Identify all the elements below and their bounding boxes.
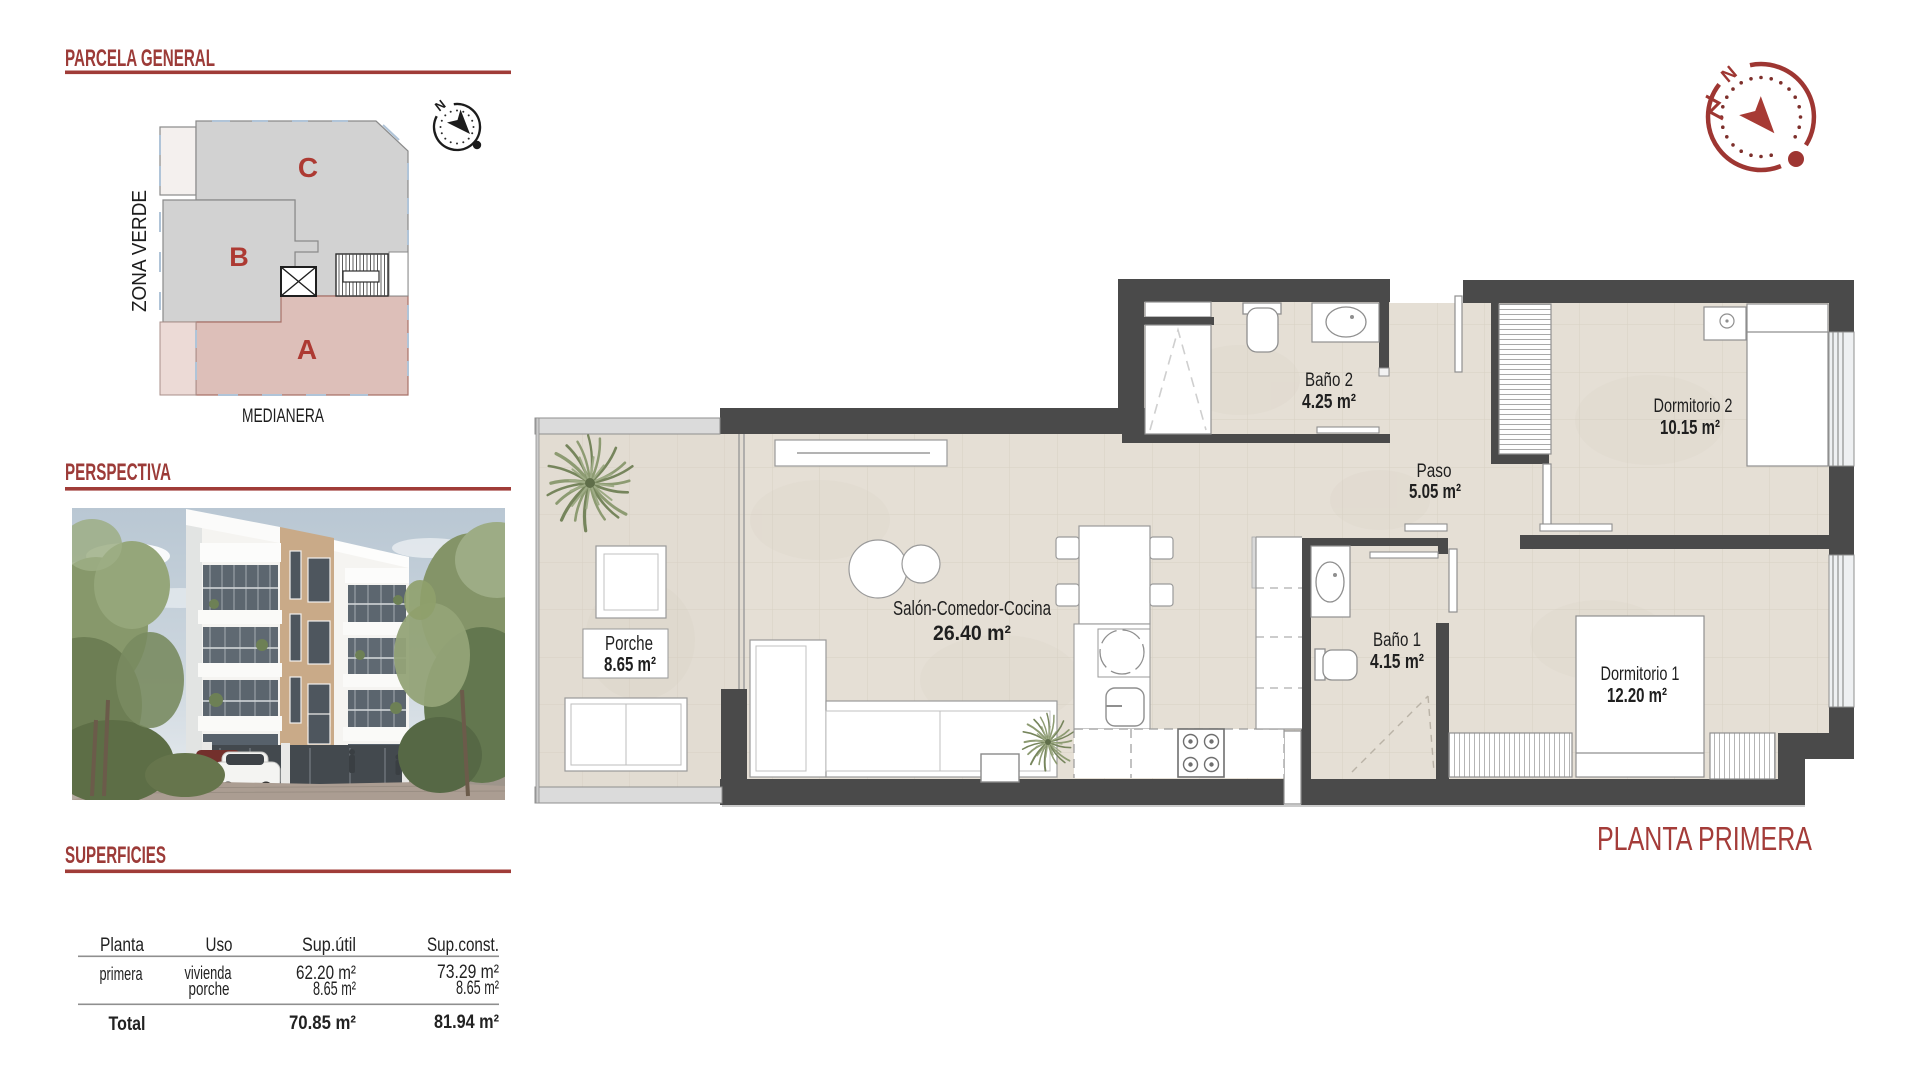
svg-text:C: C (298, 152, 318, 183)
svg-text:MEDIANERA: MEDIANERA (242, 406, 324, 427)
svg-text:Uso: Uso (206, 935, 233, 956)
svg-text:4.15 m²: 4.15 m² (1370, 651, 1424, 673)
svg-text:Salón-Comedor-Cocina: Salón-Comedor-Cocina (893, 598, 1052, 620)
svg-text:Porche: Porche (605, 633, 653, 655)
svg-text:4.25 m²: 4.25 m² (1302, 391, 1356, 413)
svg-text:81.94 m²: 81.94 m² (434, 1012, 499, 1033)
svg-text:8.65 m²: 8.65 m² (456, 978, 499, 999)
svg-text:SUPERFICIES: SUPERFICIES (65, 842, 166, 869)
svg-text:PARCELA GENERAL: PARCELA GENERAL (65, 45, 215, 72)
svg-text:Sup.útil: Sup.útil (302, 935, 356, 956)
svg-text:A: A (297, 334, 317, 365)
svg-text:12.20 m²: 12.20 m² (1607, 685, 1667, 707)
svg-text:Baño 1: Baño 1 (1373, 630, 1421, 651)
svg-text:8.65 m²: 8.65 m² (604, 654, 656, 676)
svg-text:70.85 m²: 70.85 m² (289, 1013, 356, 1034)
svg-text:Total: Total (109, 1014, 146, 1035)
svg-text:5.05 m²: 5.05 m² (1409, 481, 1461, 503)
svg-text:Sup.const.: Sup.const. (427, 935, 499, 956)
svg-text:8.65 m²: 8.65 m² (313, 979, 356, 1000)
svg-text:ZONA VERDE: ZONA VERDE (129, 190, 151, 312)
svg-text:B: B (229, 242, 249, 272)
svg-text:Planta: Planta (100, 935, 144, 956)
svg-text:Baño 2: Baño 2 (1305, 370, 1353, 391)
svg-text:porche: porche (189, 979, 230, 999)
svg-text:Dormitorio 1: Dormitorio 1 (1601, 664, 1680, 685)
svg-text:PERSPECTIVA: PERSPECTIVA (65, 459, 171, 486)
svg-text:PLANTA PRIMERA: PLANTA PRIMERA (1597, 820, 1812, 857)
svg-text:Paso: Paso (1417, 461, 1452, 482)
svg-text:Dormitorio 2: Dormitorio 2 (1654, 396, 1733, 417)
svg-text:26.40 m²: 26.40 m² (933, 622, 1011, 645)
svg-text:10.15 m²: 10.15 m² (1660, 417, 1720, 439)
svg-text:primera: primera (100, 964, 144, 984)
